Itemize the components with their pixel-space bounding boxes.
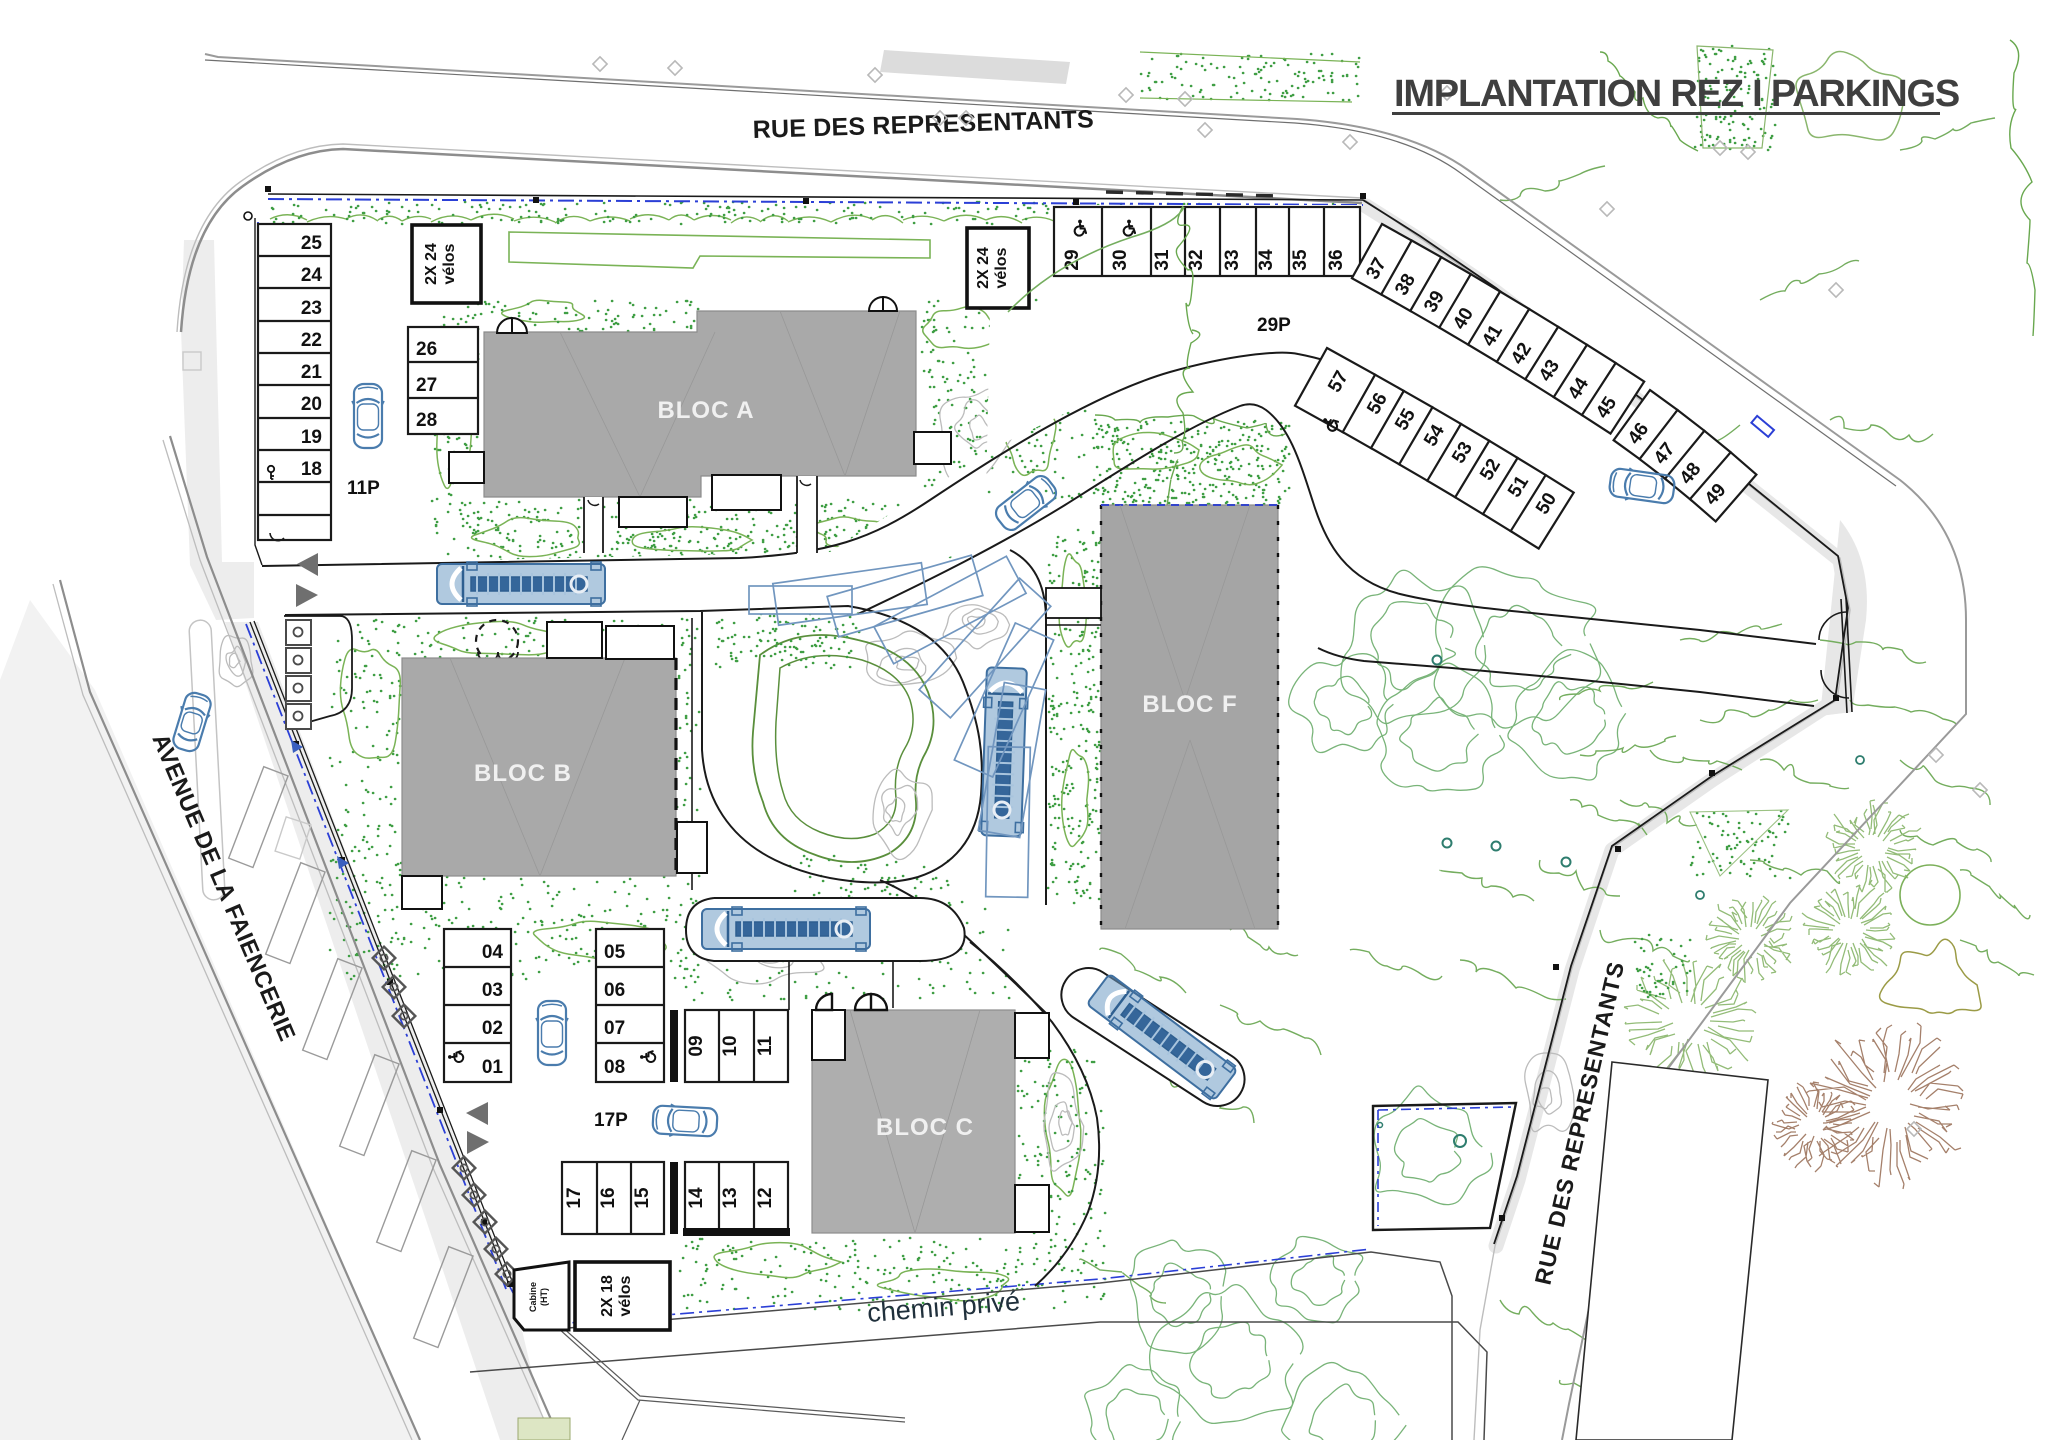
svg-text:2X 24: 2X 24 [975, 247, 992, 289]
svg-text:22: 22 [301, 330, 322, 351]
svg-text:21: 21 [301, 362, 323, 383]
svg-text:29P: 29P [1257, 315, 1291, 336]
svg-text:13: 13 [720, 1187, 741, 1208]
svg-text:14: 14 [686, 1187, 707, 1209]
svg-text:26: 26 [416, 339, 437, 360]
svg-text:10: 10 [720, 1035, 741, 1056]
svg-text:BLOC A: BLOC A [657, 397, 754, 424]
svg-text:04: 04 [482, 942, 504, 963]
svg-text:20: 20 [301, 394, 322, 415]
svg-text:25: 25 [301, 233, 323, 254]
svg-text:34: 34 [1256, 249, 1277, 271]
svg-text:17: 17 [564, 1187, 585, 1208]
svg-text:IMPLANTATION REZ I PARKINGS: IMPLANTATION REZ I PARKINGS [1394, 73, 1959, 115]
svg-text:08: 08 [604, 1057, 625, 1078]
svg-text:33: 33 [1222, 249, 1243, 270]
svg-text:09: 09 [686, 1035, 707, 1056]
svg-text:Cabine: Cabine [528, 1282, 538, 1312]
svg-text:07: 07 [604, 1018, 625, 1039]
svg-text:vélos: vélos [993, 247, 1010, 288]
svg-text:35: 35 [1290, 249, 1311, 271]
svg-text:31: 31 [1152, 249, 1173, 271]
svg-text:27: 27 [416, 375, 437, 396]
svg-text:2X 24: 2X 24 [423, 243, 440, 285]
svg-text:15: 15 [632, 1187, 653, 1209]
svg-text:23: 23 [301, 298, 322, 319]
svg-text:32: 32 [1186, 249, 1207, 270]
svg-text:28: 28 [416, 410, 437, 431]
svg-text:BLOC B: BLOC B [474, 760, 572, 787]
svg-text:BLOC F: BLOC F [1142, 691, 1237, 718]
svg-text:18: 18 [301, 459, 322, 480]
svg-text:01: 01 [482, 1057, 504, 1078]
svg-text:19: 19 [301, 427, 322, 448]
svg-text:11: 11 [755, 1036, 776, 1057]
svg-text:2X 18: 2X 18 [599, 1275, 616, 1317]
svg-text:vélos: vélos [617, 1275, 634, 1316]
svg-text:06: 06 [604, 980, 625, 1001]
svg-text:(HT): (HT) [539, 1288, 549, 1306]
svg-text:16: 16 [598, 1187, 619, 1208]
svg-text:11P: 11P [347, 478, 380, 499]
svg-text:36: 36 [1326, 249, 1347, 270]
svg-text:30: 30 [1110, 249, 1131, 270]
svg-text:12: 12 [755, 1187, 776, 1208]
svg-text:17P: 17P [594, 1110, 628, 1131]
svg-text:BLOC C: BLOC C [876, 1114, 974, 1141]
svg-text:vélos: vélos [441, 243, 458, 284]
svg-text:05: 05 [604, 942, 626, 963]
svg-text:24: 24 [301, 265, 323, 286]
svg-text:02: 02 [482, 1018, 503, 1039]
svg-text:03: 03 [482, 980, 503, 1001]
